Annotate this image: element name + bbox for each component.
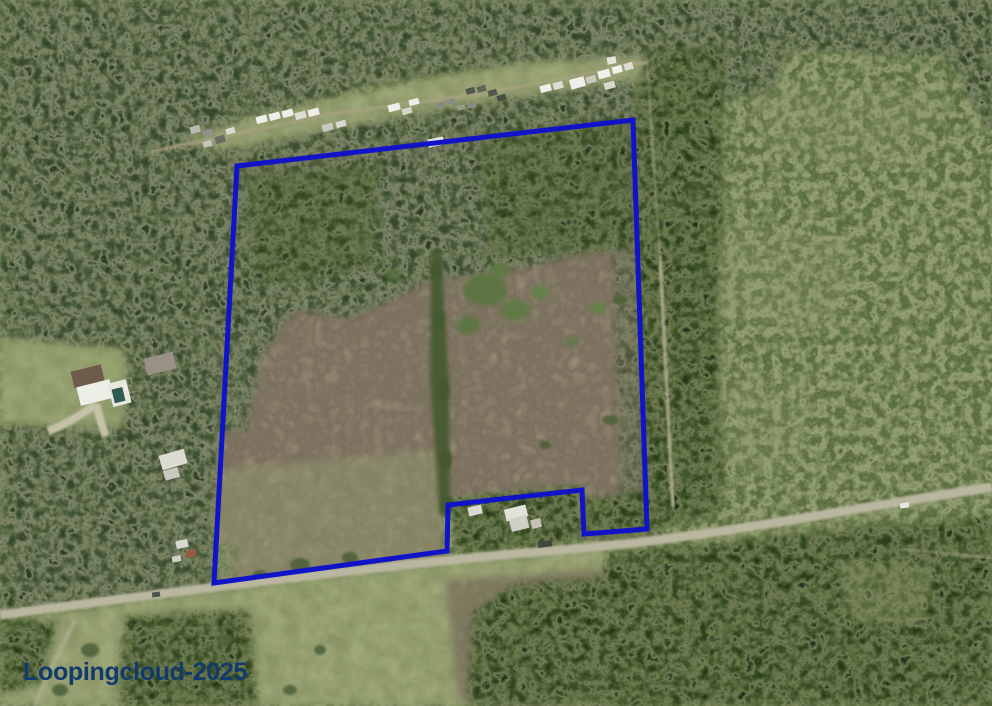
- svg-text:Loopingcloud-2025: Loopingcloud-2025: [23, 658, 247, 686]
